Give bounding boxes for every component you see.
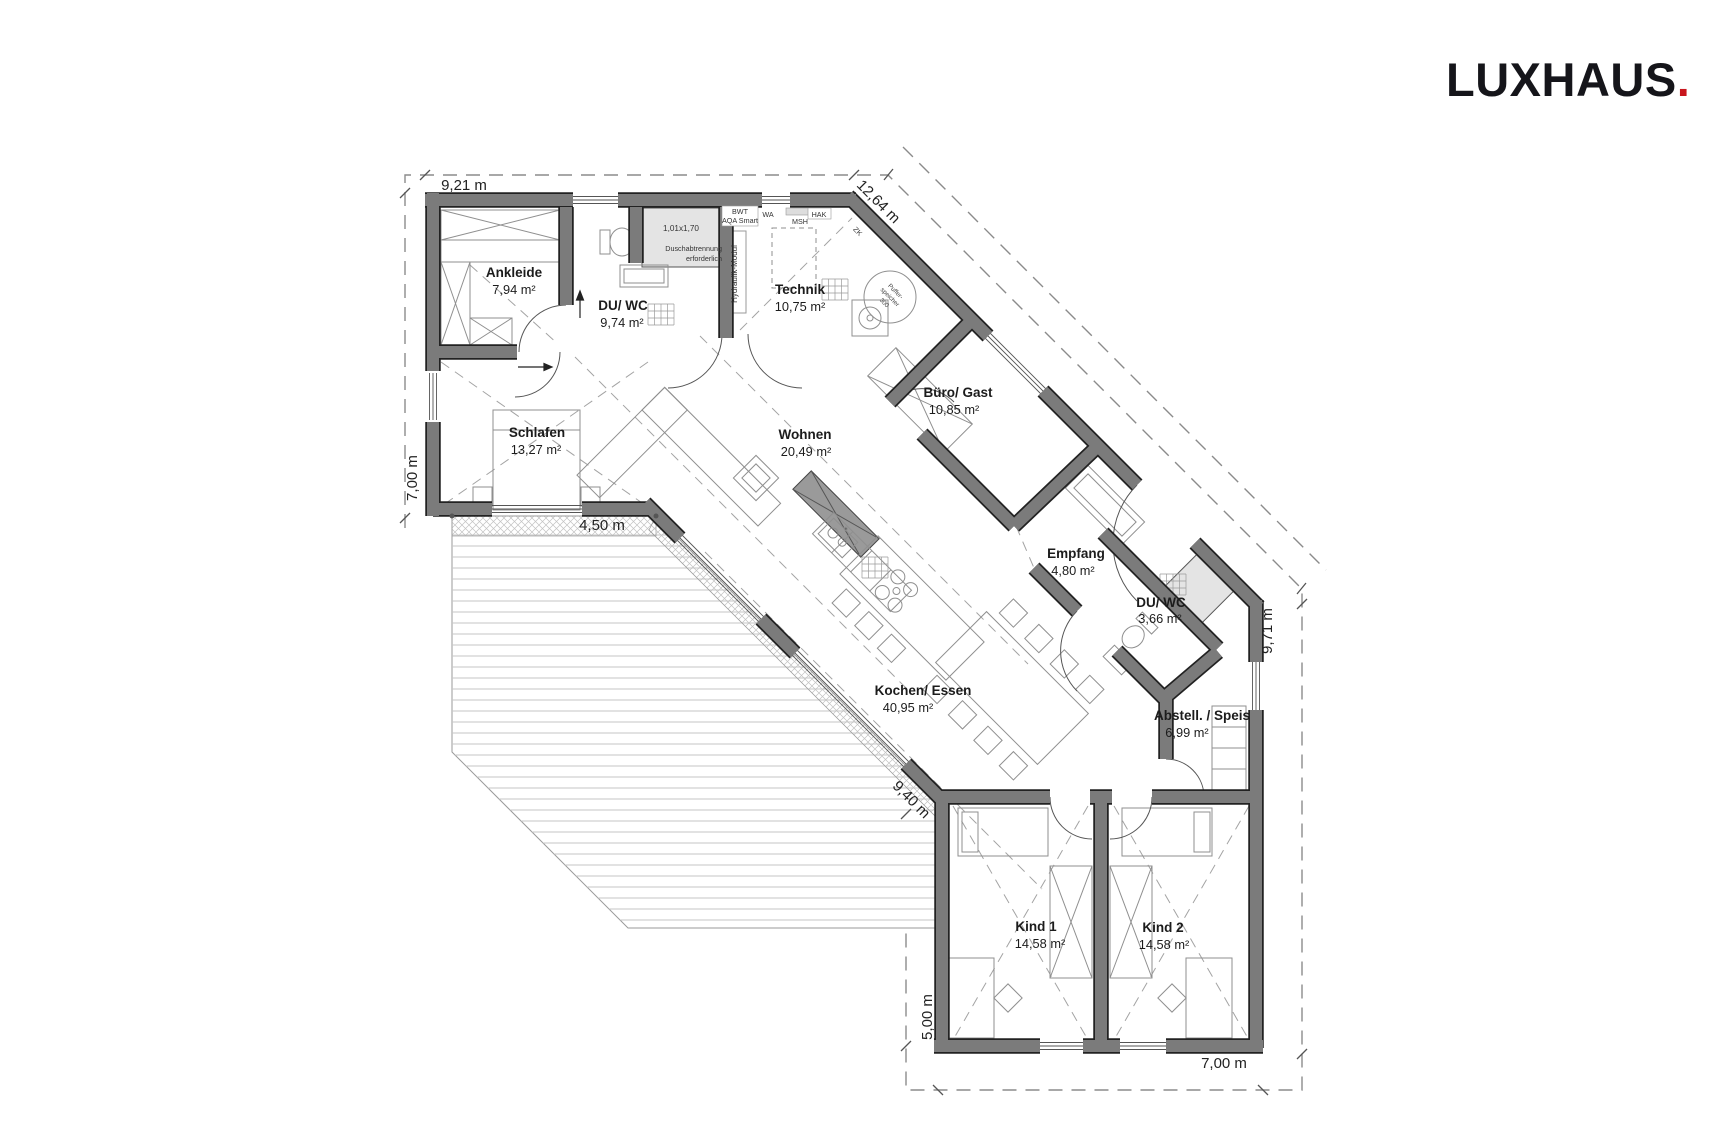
room-area-du-wc-1: 9,74 m² [600,315,644,330]
dim-top: 9,21 m [441,177,487,194]
shower-note-2: erforderlich [686,254,722,263]
bed-kind1 [958,808,1048,856]
technik-msh-unit [772,228,816,288]
chair-kind1 [994,984,1022,1012]
room-label-schlafen: Schlafen [509,425,565,440]
wardrobe-ankleide-top [441,210,560,262]
wardrobe-ankleide-south [470,318,512,345]
room-label-abstell-speis: Abstell. / Speis [1154,708,1250,723]
bwt-label-1: BWT [732,207,749,216]
room-label-kochen-essen: Kochen/ Essen [875,683,972,698]
dim-terrace-top: 4,50 m [579,517,625,534]
msh-label: MSH [792,217,808,226]
room-label-buero-gast: Büro/ Gast [923,385,993,400]
hydraulik-modul-label: Hydraulik-Modul [730,245,739,303]
room-area-schlafen: 13,27 m² [511,442,562,457]
room-area-empfang: 4,80 m² [1051,563,1095,578]
luxhaus-logo: LUXHAUS. [1446,52,1690,107]
room-area-ankleide: 7,94 m² [492,282,536,297]
room-label-ankleide: Ankleide [486,265,543,280]
kitchen-island [821,536,984,699]
shaft-symbol [648,304,674,325]
coffee-table [733,455,778,500]
room-area-kind1: 14,58 m² [1015,936,1066,951]
room-label-technik: Technik [775,282,826,297]
vanity-du-wc-1 [620,265,668,287]
floor-plan-sheet: Ankleide 7,94 m² DU/ WC 9,74 m² Technik … [0,0,1720,1147]
room-label-wohnen: Wohnen [779,427,832,442]
desk-kind1 [948,958,994,1038]
bwt-label-2: AQA Smart [722,216,758,225]
room-label-kind2: Kind 2 [1142,920,1183,935]
small-fixture-box [786,208,810,215]
logo-lux: LUX [1446,53,1542,106]
dim-bottom: 7,00 m [1201,1055,1247,1072]
dim-right: 9,71 m [1259,608,1276,654]
room-area-buero-gast: 10,85 m² [929,402,980,417]
buffer-tank-label: Puffer- speicher 300 [873,281,906,314]
room-label-empfang: Empfang [1047,546,1105,561]
room-label-kind1: Kind 1 [1015,919,1057,934]
dim-left: 7,00 m [404,455,421,501]
wa-label: WA [762,210,774,219]
room-label-du-wc-2: DU/ WC [1136,595,1186,610]
shower-note-1: Duschabtrennung [665,244,722,253]
zk-label: ZK [851,225,864,238]
hak-label: HAK [812,210,827,219]
shower-size-label: 1,01x1,70 [663,224,699,233]
dining-chair [999,599,1027,627]
bar-stool [832,589,860,617]
logo-dot: . [1677,53,1691,106]
room-area-kochen-essen: 40,95 m² [883,700,934,715]
room-area-technik: 10,75 m² [775,299,826,314]
bed-kind2 [1122,808,1212,856]
window-buero [986,334,1046,394]
dim-kids-left: 5,00 m [919,994,936,1040]
room-area-abstell-speis: 6,99 m² [1165,725,1209,740]
room-area-wohnen: 20,49 m² [781,444,832,459]
terrace-hatch-strip-top [452,516,656,536]
room-label-du-wc-1: DU/ WC [598,298,648,313]
floor-plan-drawing: Ankleide 7,94 m² DU/ WC 9,74 m² Technik … [0,0,1720,1147]
room-area-kind2: 14,58 m² [1139,937,1190,952]
wardrobe-ankleide-left [441,262,470,345]
tv-board [793,471,879,557]
logo-haus: HAUS [1542,53,1677,106]
room-area-du-wc-2: 3,66 m² [1138,611,1182,626]
chair-kind2 [1158,984,1186,1012]
